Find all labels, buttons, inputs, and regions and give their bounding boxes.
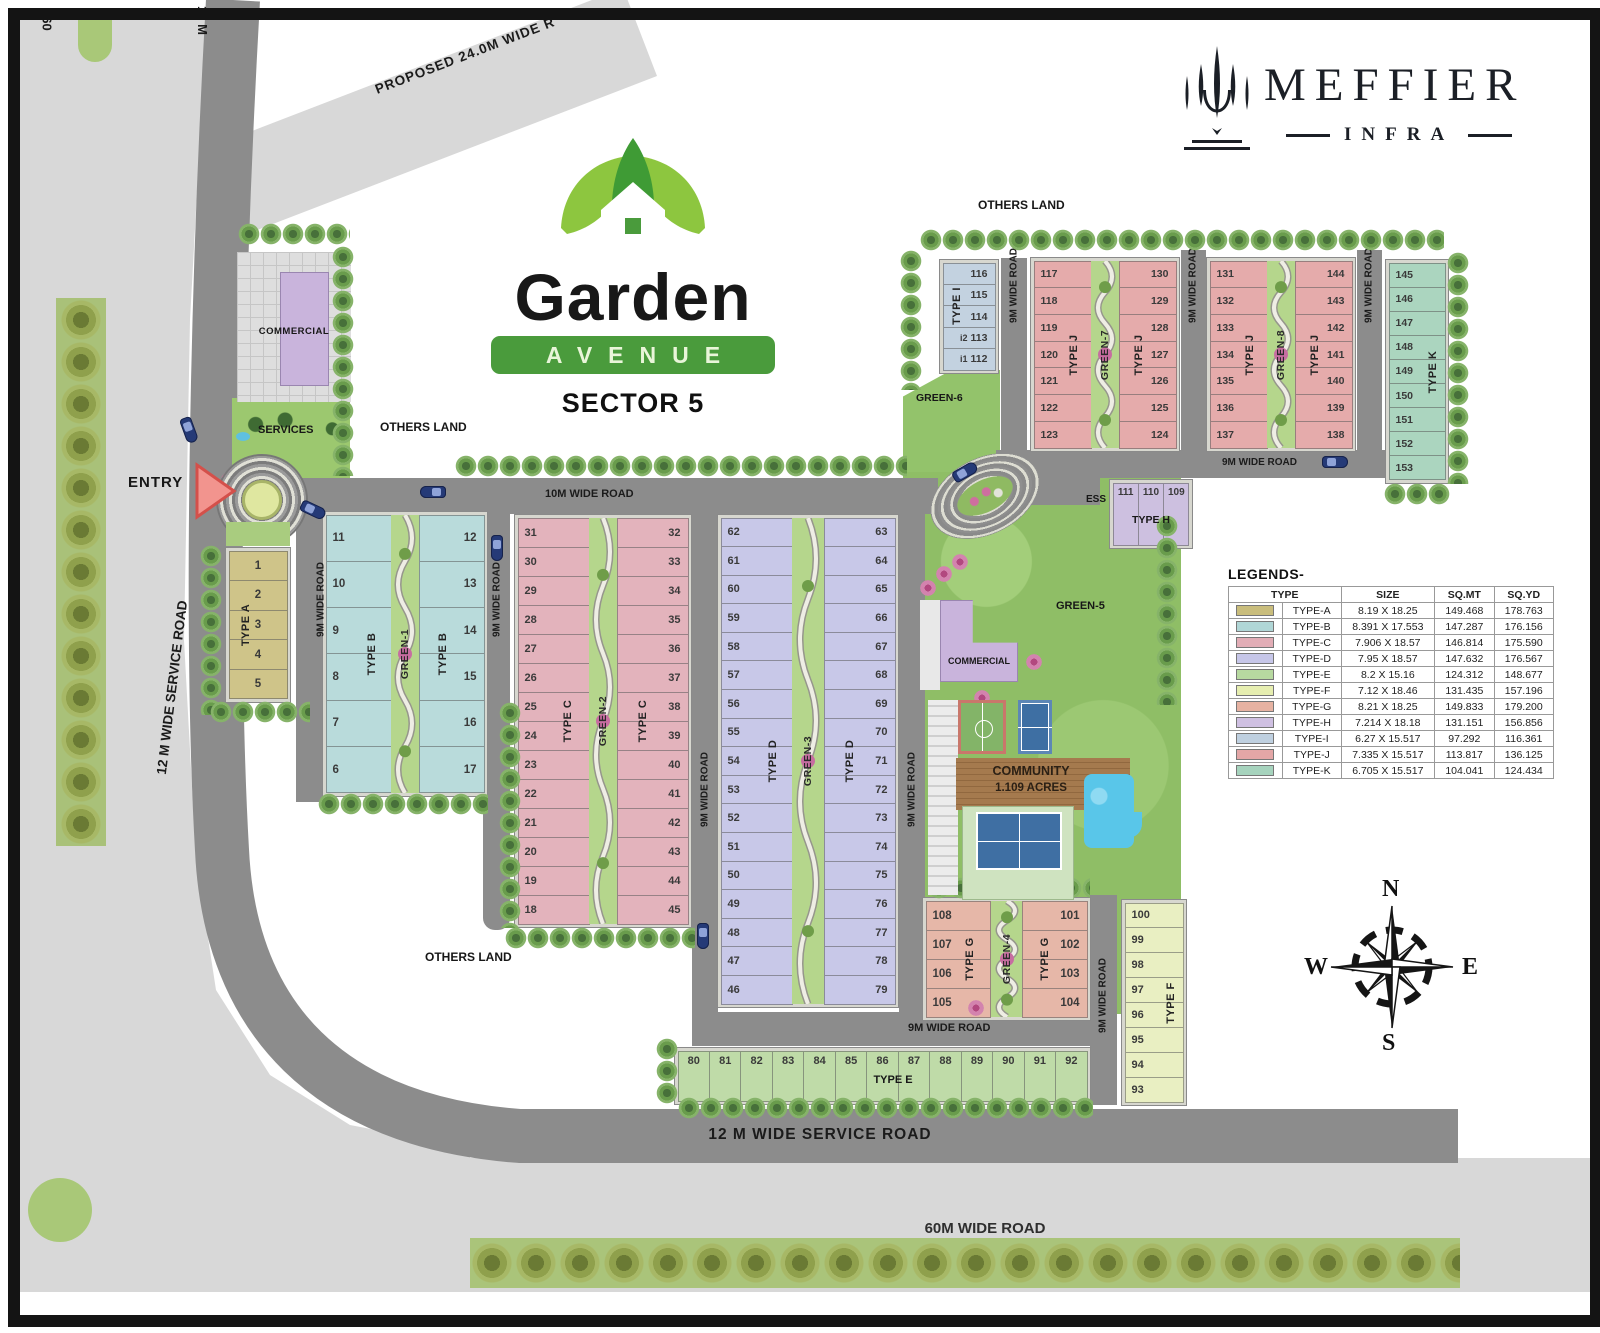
green-3-label: GREEN-3 (802, 736, 814, 786)
plot-106: 106 (926, 959, 992, 989)
legend-type: TYPE-B (1282, 619, 1341, 635)
road-label-service-bottom: 12 M WIDE SERVICE ROAD (620, 1126, 1020, 1144)
plot-126: 126 (1119, 367, 1177, 395)
plot-37: 37 (617, 663, 689, 693)
plot-139: 139 (1295, 394, 1353, 422)
type-i-label: TYPE I (951, 287, 963, 325)
tree-row (210, 700, 310, 724)
legend-header: SIZE (1341, 587, 1435, 603)
plot-60: 60 (721, 575, 793, 605)
plot-104: 104 (1022, 988, 1088, 1018)
plot-69: 69 (824, 689, 896, 719)
plot-34: 34 (617, 576, 689, 606)
legend-sqmt: 131.151 (1435, 715, 1494, 731)
plot-52: 52 (721, 803, 793, 833)
type-e-label: TYPE E (838, 1074, 948, 1086)
plot-103: 103 (1022, 959, 1088, 989)
services-label: SERVICES (258, 424, 313, 436)
legend-sqyd: 157.196 (1494, 683, 1553, 699)
legend-swatch (1236, 685, 1274, 696)
road-label-9m: 9M WIDE ROAD (700, 735, 711, 845)
plot-119: 119 (1034, 314, 1092, 342)
legend-row: TYPE-B8.391 X 17.553147.287176.156 (1229, 619, 1554, 635)
legend-type: TYPE-J (1282, 747, 1341, 763)
plot-33: 33 (617, 547, 689, 577)
developer-name: MEFFIER (1264, 58, 1526, 112)
legend-swatch (1236, 701, 1274, 712)
dash-icon (1468, 134, 1512, 137)
legend-row: TYPE-G8.21 X 18.25149.833179.200 (1229, 699, 1554, 715)
compass-n: N (1382, 876, 1399, 903)
compass-icon (1327, 902, 1457, 1032)
garden-leaves-house-icon (543, 130, 723, 270)
plot-130: 130 (1119, 261, 1177, 289)
plot-21: 21 (518, 808, 590, 838)
plot-107: 107 (926, 930, 992, 960)
car-icon (697, 923, 709, 949)
block-g-right: TYPE G101102103104 (1023, 901, 1088, 1017)
plot-101: 101 (1022, 901, 1088, 931)
plot-28: 28 (518, 605, 590, 635)
plot-91: 91 (1024, 1051, 1056, 1102)
tree-row (1446, 252, 1470, 484)
compass-e: E (1462, 954, 1478, 981)
legend-sqyd: 179.200 (1494, 699, 1553, 715)
parking-strip (928, 700, 958, 895)
plot-132: 132 (1210, 287, 1268, 315)
legend-row: TYPE-E8.2 X 15.16124.312148.677 (1229, 667, 1554, 683)
type-g-label: TYPE G (964, 937, 976, 980)
plot-39: 39 (617, 721, 689, 751)
plot-6: 6 (326, 746, 392, 793)
plot-147: 147 (1389, 311, 1446, 336)
block-type-f: 10099989796959493 TYPE F (1122, 900, 1186, 1105)
plot-82: 82 (740, 1051, 772, 1102)
plot-1: 1 (229, 551, 288, 582)
legend-sqyd: 178.763 (1494, 603, 1553, 619)
plot-59: 59 (721, 603, 793, 633)
plot-138: 138 (1295, 421, 1353, 449)
plot-95: 95 (1125, 1027, 1184, 1053)
plot-3: 3 (229, 610, 288, 641)
compass-rose: N E S W (1302, 874, 1482, 1064)
plot-20: 20 (518, 837, 590, 867)
plot-140: 140 (1295, 367, 1353, 395)
pond (236, 432, 250, 441)
legend-row: TYPE-H7.214 X 18.18131.151156.856 (1229, 715, 1554, 731)
legend-sqmt: 104.041 (1435, 763, 1494, 779)
legend-row: TYPE-F7.12 X 18.46131.435157.196 (1229, 683, 1554, 699)
type-a-label: TYPE A (240, 604, 252, 646)
plot-i2-113: i2113 (943, 327, 996, 349)
block-j2-right: TYPE J144143142141140139138 (1295, 261, 1352, 448)
block-d-left: TYPE D6261605958575655545352515049484746 (721, 518, 792, 1004)
plot-41: 41 (617, 779, 689, 809)
plot-73: 73 (824, 803, 896, 833)
legend-type: TYPE-K (1282, 763, 1341, 779)
tennis-court (1018, 700, 1052, 754)
plot-116: 116 (943, 263, 996, 285)
legend-sqyd: 156.856 (1494, 715, 1553, 731)
project-name: Garden (478, 264, 788, 330)
plot-14: 14 (419, 607, 485, 654)
plot-142: 142 (1295, 314, 1353, 342)
legend-title: LEGENDS- (1228, 566, 1558, 582)
plot-102: 102 (1022, 930, 1088, 960)
plot-4: 4 (229, 639, 288, 670)
green-2-strip: GREEN-2 (589, 518, 617, 924)
legend-type: TYPE-I (1282, 731, 1341, 747)
type-b-label: TYPE B (437, 633, 449, 676)
plot-64: 64 (824, 546, 896, 576)
plot-144: 144 (1295, 261, 1353, 289)
legend-size: 6.705 X 15.517 (1341, 763, 1435, 779)
plot-62: 62 (721, 518, 793, 548)
type-j-label: TYPE J (1309, 334, 1321, 375)
legend-type: TYPE-E (1282, 667, 1341, 683)
project-sector: SECTOR 5 (478, 388, 788, 419)
commercial-label-1: COMMERCIAL (237, 326, 351, 337)
block-d-right: TYPE D6364656667686970717273747576777879 (824, 518, 895, 1004)
plot-71: 71 (824, 746, 896, 776)
others-land-label: OTHERS LAND (978, 198, 1065, 212)
plot-63: 63 (824, 518, 896, 548)
type-j-label: TYPE J (1244, 334, 1256, 375)
legend-size: 8.21 X 18.25 (1341, 699, 1435, 715)
plot-78: 78 (824, 946, 896, 976)
legend-type: TYPE-C (1282, 635, 1341, 651)
legend-sqyd: 116.361 (1494, 731, 1553, 747)
legend-size: 8.391 X 17.553 (1341, 619, 1435, 635)
type-g-label: TYPE G (1039, 937, 1051, 980)
plot-19: 19 (518, 866, 590, 896)
legend-sqmt: 147.632 (1435, 651, 1494, 667)
tree-median-bottom (470, 1238, 1460, 1288)
compass-s: S (1382, 1030, 1395, 1057)
flower-tree-icon (968, 1000, 984, 1016)
plot-75: 75 (824, 861, 896, 891)
plot-141: 141 (1295, 341, 1353, 369)
tree-row (1384, 482, 1450, 506)
plot-32: 32 (617, 518, 689, 548)
legend-size: 7.906 X 18.57 (1341, 635, 1435, 651)
block-b-left: TYPE B11109876 (326, 515, 391, 793)
plot-35: 35 (617, 605, 689, 635)
type-f-label: TYPE F (1165, 982, 1177, 1024)
plot-56: 56 (721, 689, 793, 719)
legend-sqmt: 124.312 (1435, 667, 1494, 683)
entry-label: ENTRY (128, 474, 183, 491)
legend-sqmt: 149.468 (1435, 603, 1494, 619)
tree-row (318, 792, 488, 816)
plot-72: 72 (824, 775, 896, 805)
plot-100: 100 (1125, 903, 1184, 929)
legend-swatch (1236, 733, 1274, 744)
legend-size: 7.335 X 15.517 (1341, 747, 1435, 763)
plot-90: 90 (992, 1051, 1024, 1102)
plot-118: 118 (1034, 287, 1092, 315)
type-b-label: TYPE B (366, 633, 378, 676)
plot-84: 84 (803, 1051, 835, 1102)
green-3-strip: GREEN-3 (792, 518, 824, 1004)
others-land-label: OTHERS LAND (425, 950, 512, 964)
tree-row (920, 228, 1444, 252)
green-7-label: GREEN-7 (1099, 329, 1111, 379)
flower-tree-icon (920, 580, 936, 596)
garden-avenue-logo: Garden AVENUE SECTOR 5 (478, 130, 788, 419)
legend-header: TYPE (1229, 587, 1342, 603)
plot-120: 120 (1034, 341, 1092, 369)
legend-swatch (1236, 669, 1274, 680)
car-icon (420, 486, 446, 498)
legend-size: 8.2 X 15.16 (1341, 667, 1435, 683)
plot-57: 57 (721, 660, 793, 690)
plot-24: 24 (518, 721, 590, 751)
plot-53: 53 (721, 775, 793, 805)
plot-83: 83 (772, 1051, 804, 1102)
block-type-j2: TYPE J131132133134135136137 GREEN-8 TYPE… (1207, 258, 1355, 451)
green-1-label: GREEN-1 (399, 629, 411, 679)
green-6-label: GREEN-6 (916, 392, 963, 404)
legend-row: TYPE-C7.906 X 18.57146.814175.590 (1229, 635, 1554, 651)
plot-76: 76 (824, 889, 896, 919)
plot-122: 122 (1034, 394, 1092, 422)
plot-29: 29 (518, 576, 590, 606)
legend-swatch (1236, 621, 1274, 632)
legend-sqyd: 148.677 (1494, 667, 1553, 683)
plot-131: 131 (1210, 261, 1268, 289)
plot-7: 7 (326, 700, 392, 747)
plot-5: 5 (229, 669, 288, 700)
legend-swatch (1236, 653, 1274, 664)
legend-row: TYPE-D7.95 X 18.57147.632176.567 (1229, 651, 1554, 667)
flower-tree-icon (936, 566, 952, 582)
legend-type: TYPE-G (1282, 699, 1341, 715)
plot-38: 38 (617, 692, 689, 722)
plot-98: 98 (1125, 952, 1184, 978)
plot-27: 27 (518, 634, 590, 664)
green-8-label: GREEN-8 (1275, 329, 1287, 379)
block-type-j1: TYPE J117118119120121122123 GREEN-7 TYPE… (1031, 258, 1179, 451)
plot-23: 23 (518, 750, 590, 780)
plot-125: 125 (1119, 394, 1177, 422)
block-b-right: TYPE B121314151617 (419, 515, 484, 793)
legend-type: TYPE-H (1282, 715, 1341, 731)
plot-127: 127 (1119, 341, 1177, 369)
plot-92: 92 (1055, 1051, 1087, 1102)
plot-43: 43 (617, 837, 689, 867)
plot-80: 80 (678, 1051, 710, 1102)
plot-55: 55 (721, 718, 793, 748)
compass-w: W (1304, 954, 1328, 981)
tree-row (655, 1038, 679, 1104)
legend-sqmt: 97.292 (1435, 731, 1494, 747)
block-type-d: TYPE D6261605958575655545352515049484746… (718, 515, 898, 1007)
tree-row (899, 250, 923, 390)
plot-12: 12 (419, 515, 485, 562)
plot-134: 134 (1210, 341, 1268, 369)
road-label-9m: 9M WIDE ROAD (492, 545, 503, 655)
plot-79: 79 (824, 975, 896, 1005)
legend-row: TYPE-K6.705 X 15.517104.041124.434 (1229, 763, 1554, 779)
plot-133: 133 (1210, 314, 1268, 342)
legend-size: 7.12 X 18.46 (1341, 683, 1435, 699)
legend-sqmt: 113.817 (1435, 747, 1494, 763)
plot-70: 70 (824, 718, 896, 748)
car-icon (1322, 456, 1348, 468)
plot-153: 153 (1389, 455, 1446, 480)
green-4-strip: GREEN-4 (991, 901, 1023, 1017)
plot-49: 49 (721, 889, 793, 919)
flower-tree-icon (952, 554, 968, 570)
plot-77: 77 (824, 918, 896, 948)
plot-108: 108 (926, 901, 992, 931)
green-2-label: GREEN-2 (597, 696, 609, 746)
road-label-9m: 9M WIDE ROAD (1098, 941, 1109, 1051)
project-avenue-pill: AVENUE (491, 336, 775, 374)
tree-row (678, 1096, 1093, 1120)
plot-54: 54 (721, 746, 793, 776)
legend-table: TYPESIZESQ.MTSQ.YDTYPE-A8.19 X 18.25149.… (1228, 586, 1554, 779)
plot-121: 121 (1034, 367, 1092, 395)
plot-74: 74 (824, 832, 896, 862)
legend-row: TYPE-A8.19 X 18.25149.468178.763 (1229, 603, 1554, 619)
road-label-9m: 9M WIDE ROAD (908, 1022, 991, 1034)
plot-25: 25 (518, 692, 590, 722)
plot-65: 65 (824, 575, 896, 605)
legend-type: TYPE-F (1282, 683, 1341, 699)
plot-143: 143 (1295, 287, 1353, 315)
legend-type: TYPE-A (1282, 603, 1341, 619)
type-j-label: TYPE J (1068, 334, 1080, 375)
car-icon (491, 535, 503, 561)
community-label-line1: COMMUNITY (992, 764, 1069, 778)
block-type-k: 145146147148149150151152153 TYPE K (1386, 260, 1448, 483)
legend-size: 7.214 X 18.18 (1341, 715, 1435, 731)
legend-swatch (1236, 637, 1274, 648)
plot-124: 124 (1119, 421, 1177, 449)
plot-117: 117 (1034, 261, 1092, 289)
tree-row (455, 454, 907, 478)
type-c-label: TYPE C (562, 700, 574, 743)
legend-sqyd: 176.567 (1494, 651, 1553, 667)
plot-2: 2 (229, 580, 288, 611)
green-patch-topleft (78, 12, 112, 62)
road-label-9m: 9M WIDE ROAD (1222, 457, 1297, 468)
type-c-label: TYPE C (637, 700, 649, 743)
plot-30: 30 (518, 547, 590, 577)
plot-58: 58 (721, 632, 793, 662)
dash-icon (1286, 134, 1330, 137)
legend-size: 6.27 X 15.517 (1341, 731, 1435, 747)
block-j2-left: TYPE J131132133134135136137 (1210, 261, 1267, 448)
legend-sqmt: 146.814 (1435, 635, 1494, 651)
plot-152: 152 (1389, 431, 1446, 456)
ess-label: ESS (1086, 494, 1106, 505)
type-h-label: TYPE H (1110, 514, 1192, 526)
block-type-g: TYPE G108107106105 GREEN-4 TYPE G1011021… (923, 898, 1090, 1020)
site-plan-canvas: 60 12 M PROPOSED 24.0M WIDE R 12 M WIDE … (0, 0, 1600, 1333)
plot-18: 18 (518, 895, 590, 925)
plot-13: 13 (419, 561, 485, 608)
community-label-line2: 1.109 ACRES (995, 782, 1067, 794)
plot-68: 68 (824, 660, 896, 690)
legend-sqyd: 176.156 (1494, 619, 1553, 635)
road-label-9m: 9M WIDE ROAD (907, 735, 918, 845)
plot-151: 151 (1389, 407, 1446, 432)
plot-136: 136 (1210, 394, 1268, 422)
plot-47: 47 (721, 946, 793, 976)
plot-46: 46 (721, 975, 793, 1005)
block-c-left: TYPE C3130292827262524232221201918 (518, 518, 589, 924)
legend-sqyd: 136.125 (1494, 747, 1553, 763)
road-label-60m: 60M WIDE ROAD (835, 1220, 1135, 1237)
tree-median-left (56, 298, 106, 846)
road-label-12m-top: 12 M (195, 6, 210, 35)
type-k-label: TYPE K (1427, 350, 1439, 393)
plot-67: 67 (824, 632, 896, 662)
green-4-label: GREEN-4 (1001, 934, 1013, 984)
green-1-strip: GREEN-1 (391, 515, 419, 793)
road-label-60: 60 (40, 16, 55, 30)
green-8-strip: GREEN-8 (1267, 261, 1295, 448)
entry-arrow-icon (194, 462, 238, 520)
plot-99: 99 (1125, 927, 1184, 953)
plot-45: 45 (617, 895, 689, 925)
plot-10: 10 (326, 561, 392, 608)
legend-header: SQ.MT (1435, 587, 1494, 603)
tree-row (1155, 515, 1179, 705)
block-j1-right: TYPE J130129128127126125124 (1119, 261, 1176, 448)
basketball-court (958, 700, 1006, 754)
plot-22: 22 (518, 779, 590, 809)
plot-145: 145 (1389, 263, 1446, 288)
legend-swatch (1236, 765, 1274, 776)
legend-row: TYPE-I6.27 X 15.51797.292116.361 (1229, 731, 1554, 747)
type-d-label: TYPE D (767, 740, 779, 783)
block-type-i: 116115114i2113i1112 TYPE I (940, 260, 998, 373)
plot-66: 66 (824, 603, 896, 633)
plot-15: 15 (419, 653, 485, 700)
flower-tree-icon (1026, 654, 1042, 670)
block-type-a: 12345 TYPE A (226, 548, 290, 702)
legend-sqyd: 124.434 (1494, 763, 1553, 779)
legend-size: 8.19 X 18.25 (1341, 603, 1435, 619)
green-circle-bottomleft (28, 1178, 92, 1242)
road-label-10m: 10M WIDE ROAD (545, 488, 634, 500)
legend-panel: LEGENDS- TYPESIZESQ.MTSQ.YDTYPE-A8.19 X … (1228, 566, 1558, 779)
plot-61: 61 (721, 546, 793, 576)
commercial-forecourt (920, 600, 940, 690)
commercial-label-2: COMMERCIAL (938, 656, 1020, 666)
legend-sqmt: 131.435 (1435, 683, 1494, 699)
plot-128: 128 (1119, 314, 1177, 342)
tree-row (498, 702, 522, 928)
tree-row (238, 222, 350, 246)
plot-137: 137 (1210, 421, 1268, 449)
block-a-plots: 12345 (229, 551, 287, 699)
plot-50: 50 (721, 861, 793, 891)
road-label-9m: 9M WIDE ROAD (316, 545, 327, 655)
legend-row: TYPE-J7.335 X 15.517113.817136.125 (1229, 747, 1554, 763)
plot-16: 16 (419, 700, 485, 747)
others-land-label: OTHERS LAND (380, 420, 467, 434)
legend-swatch (1236, 749, 1274, 760)
badminton-court (976, 812, 1062, 870)
block-type-c: TYPE C3130292827262524232221201918 GREEN… (515, 515, 691, 927)
plot-51: 51 (721, 832, 793, 862)
plot-129: 129 (1119, 287, 1177, 315)
